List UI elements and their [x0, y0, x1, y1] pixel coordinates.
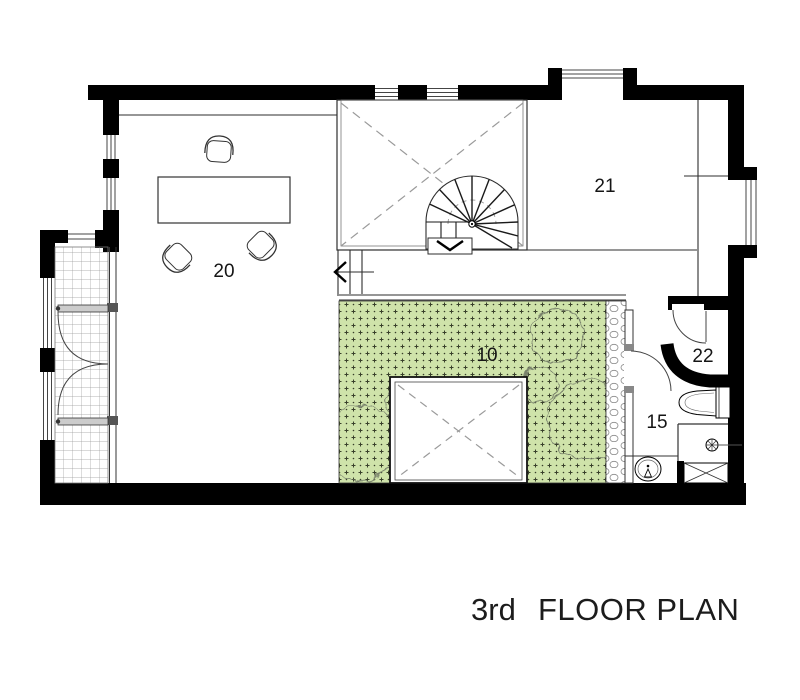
door-jamb: [624, 344, 634, 351]
window-balcony-west-1: [40, 278, 55, 348]
room-label-15: 15: [646, 412, 667, 433]
office-chair-icon: [204, 135, 234, 163]
terrace-skylight: [390, 377, 527, 483]
room-label-21: 21: [594, 176, 615, 197]
toilet-icon: [679, 387, 730, 418]
stone-border: [606, 301, 626, 483]
stair-down-landing: [428, 238, 472, 254]
plan-title-main: FLOOR PLAN: [538, 592, 739, 627]
room-label-22: 22: [692, 346, 713, 367]
bay-window-cap-bottom: [728, 245, 757, 258]
bay-window-right: [728, 180, 756, 245]
balcony-tile-grid: [55, 247, 108, 483]
office-furniture: [157, 135, 290, 277]
window-left-2: [103, 178, 119, 210]
room22-and-bathroom: [624, 304, 744, 483]
room22-door: [672, 304, 706, 343]
glazing-mullion: [107, 416, 118, 425]
top-bay-cap-left: [548, 68, 562, 100]
wall-balcony-stub-outer: [40, 230, 68, 243]
plan-title: 3rd FLOOR PLAN: [471, 592, 739, 627]
bay-window-cap-top: [728, 167, 757, 180]
balcony: [55, 247, 118, 483]
wall-right-upper: [728, 85, 744, 171]
window-top-2: [427, 85, 458, 100]
glazing-mullion: [107, 303, 118, 312]
floor-plan: 20 21 10 22 15 3rd FLOOR PLAN: [0, 0, 800, 700]
office-chair-icon: [157, 239, 195, 277]
room-label-10: 10: [476, 345, 497, 366]
plan-title-prefix: 3rd: [471, 592, 516, 627]
wall-balcony-stub-inner: [95, 230, 119, 248]
office-chair-icon: [243, 227, 281, 265]
window-balcony-top: [68, 234, 95, 239]
desk: [158, 177, 290, 223]
door-jamb: [624, 386, 634, 393]
terrace: [322, 294, 628, 483]
corridor-steps: [335, 250, 374, 296]
window-top-1: [375, 85, 398, 100]
wall-bottom: [40, 483, 746, 505]
door-swing-arc: [673, 310, 706, 343]
wall-left-upper: [103, 100, 119, 252]
floor-grate-icon: [677, 461, 728, 483]
balcony-glazing: [110, 247, 117, 483]
floor-plan-page: 20 21 10 22 15 3rd FLOOR PLAN: [0, 0, 800, 700]
room-label-20: 20: [213, 261, 234, 282]
top-bay-cap-right: [623, 68, 637, 100]
shower-partition: [678, 424, 728, 464]
window-left-1: [103, 135, 119, 159]
window-balcony-west-2: [40, 372, 55, 440]
bay-window-top: [562, 70, 623, 100]
